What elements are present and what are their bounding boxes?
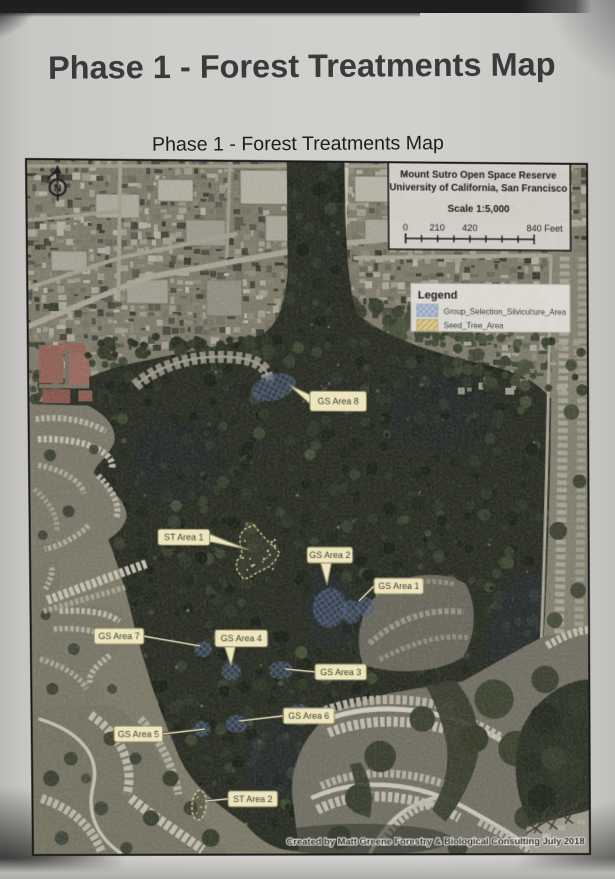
svg-text:GS Area 5: GS Area 5	[118, 729, 159, 739]
svg-text:University of California, San: University of California, San Francisco	[389, 182, 567, 194]
svg-text:Created by Matt Greene Forestr: Created by Matt Greene Forestry & Biolog…	[286, 836, 584, 846]
svg-text:Group_Selection_Silviculture_A: Group_Selection_Silviculture_Area	[444, 307, 567, 317]
svg-text:GS Area 1: GS Area 1	[378, 581, 419, 591]
svg-text:Legend: Legend	[418, 290, 458, 302]
svg-text:GS Area 2: GS Area 2	[309, 550, 350, 560]
svg-text:0: 0	[403, 222, 408, 232]
svg-text:840 Feet: 840 Feet	[526, 223, 563, 233]
svg-text:Scale 1:5,000: Scale 1:5,000	[448, 204, 511, 215]
svg-text:GS Area 6: GS Area 6	[288, 711, 329, 721]
svg-text:ST Area 2: ST Area 2	[233, 794, 273, 804]
svg-text:Seed_Tree_Area: Seed_Tree_Area	[444, 321, 504, 330]
svg-text:420: 420	[462, 223, 477, 233]
svg-text:GS Area 7: GS Area 7	[98, 631, 139, 641]
svg-text:N: N	[54, 182, 62, 194]
svg-text:210: 210	[429, 223, 444, 233]
svg-text:ST Area 1: ST Area 1	[164, 532, 204, 542]
svg-text:GS Area 8: GS Area 8	[318, 396, 359, 406]
svg-text:GS Area 4: GS Area 4	[221, 634, 262, 644]
svg-text:Mount Sutro Open Space Reserve: Mount Sutro Open Space Reserve	[400, 169, 557, 181]
svg-text:GS Area 3: GS Area 3	[320, 667, 361, 677]
